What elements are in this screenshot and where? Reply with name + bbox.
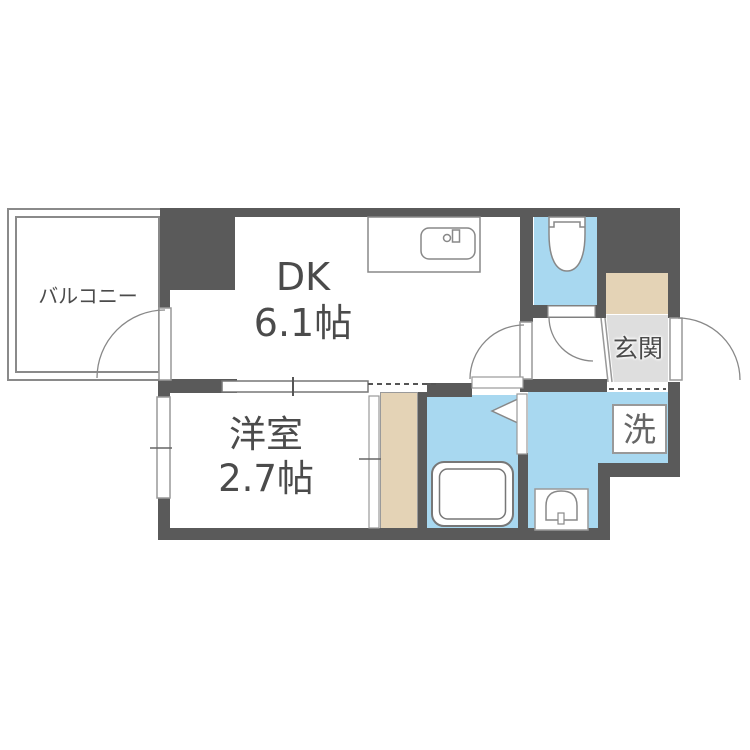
balcony-door-panel (159, 308, 171, 380)
western-room-size: 2.7帖 (176, 458, 356, 498)
laundry-label: 洗 (623, 413, 656, 446)
western-room-label: 洋室 (186, 414, 346, 454)
balcony-label: バルコニー (18, 284, 158, 308)
entrance-door-panel (670, 318, 682, 380)
dk-room-label: DK (223, 257, 383, 297)
dk-door-arc (470, 325, 524, 379)
faucet-knob-icon (444, 235, 451, 242)
toilet-door-panel (548, 306, 595, 317)
dk-door-panel (520, 322, 532, 379)
entrance-label: 玄関 (606, 334, 670, 362)
bath-door-triangle-icon (492, 398, 520, 424)
bath-door-panel (517, 394, 527, 454)
sliding-door (222, 381, 368, 392)
dk-room-size: 6.1帖 (213, 303, 393, 343)
entrance-door-arc (678, 318, 740, 380)
dk-door-threshold (472, 377, 523, 388)
kitchen-sink-icon (421, 228, 475, 259)
closet-door-panel (369, 396, 379, 528)
floor-plan: バルコニー DK 6.1帖 洋室 2.7帖 玄関 洗 (0, 0, 750, 750)
faucet-icon (453, 230, 460, 242)
fixtures-layer (0, 0, 750, 750)
balcony-door-arc (97, 310, 165, 378)
toilet-door-arc (549, 317, 593, 361)
bathtub-icon (432, 462, 513, 526)
laundry-box: 洗 (612, 404, 667, 454)
washbasin-drain (558, 513, 564, 524)
